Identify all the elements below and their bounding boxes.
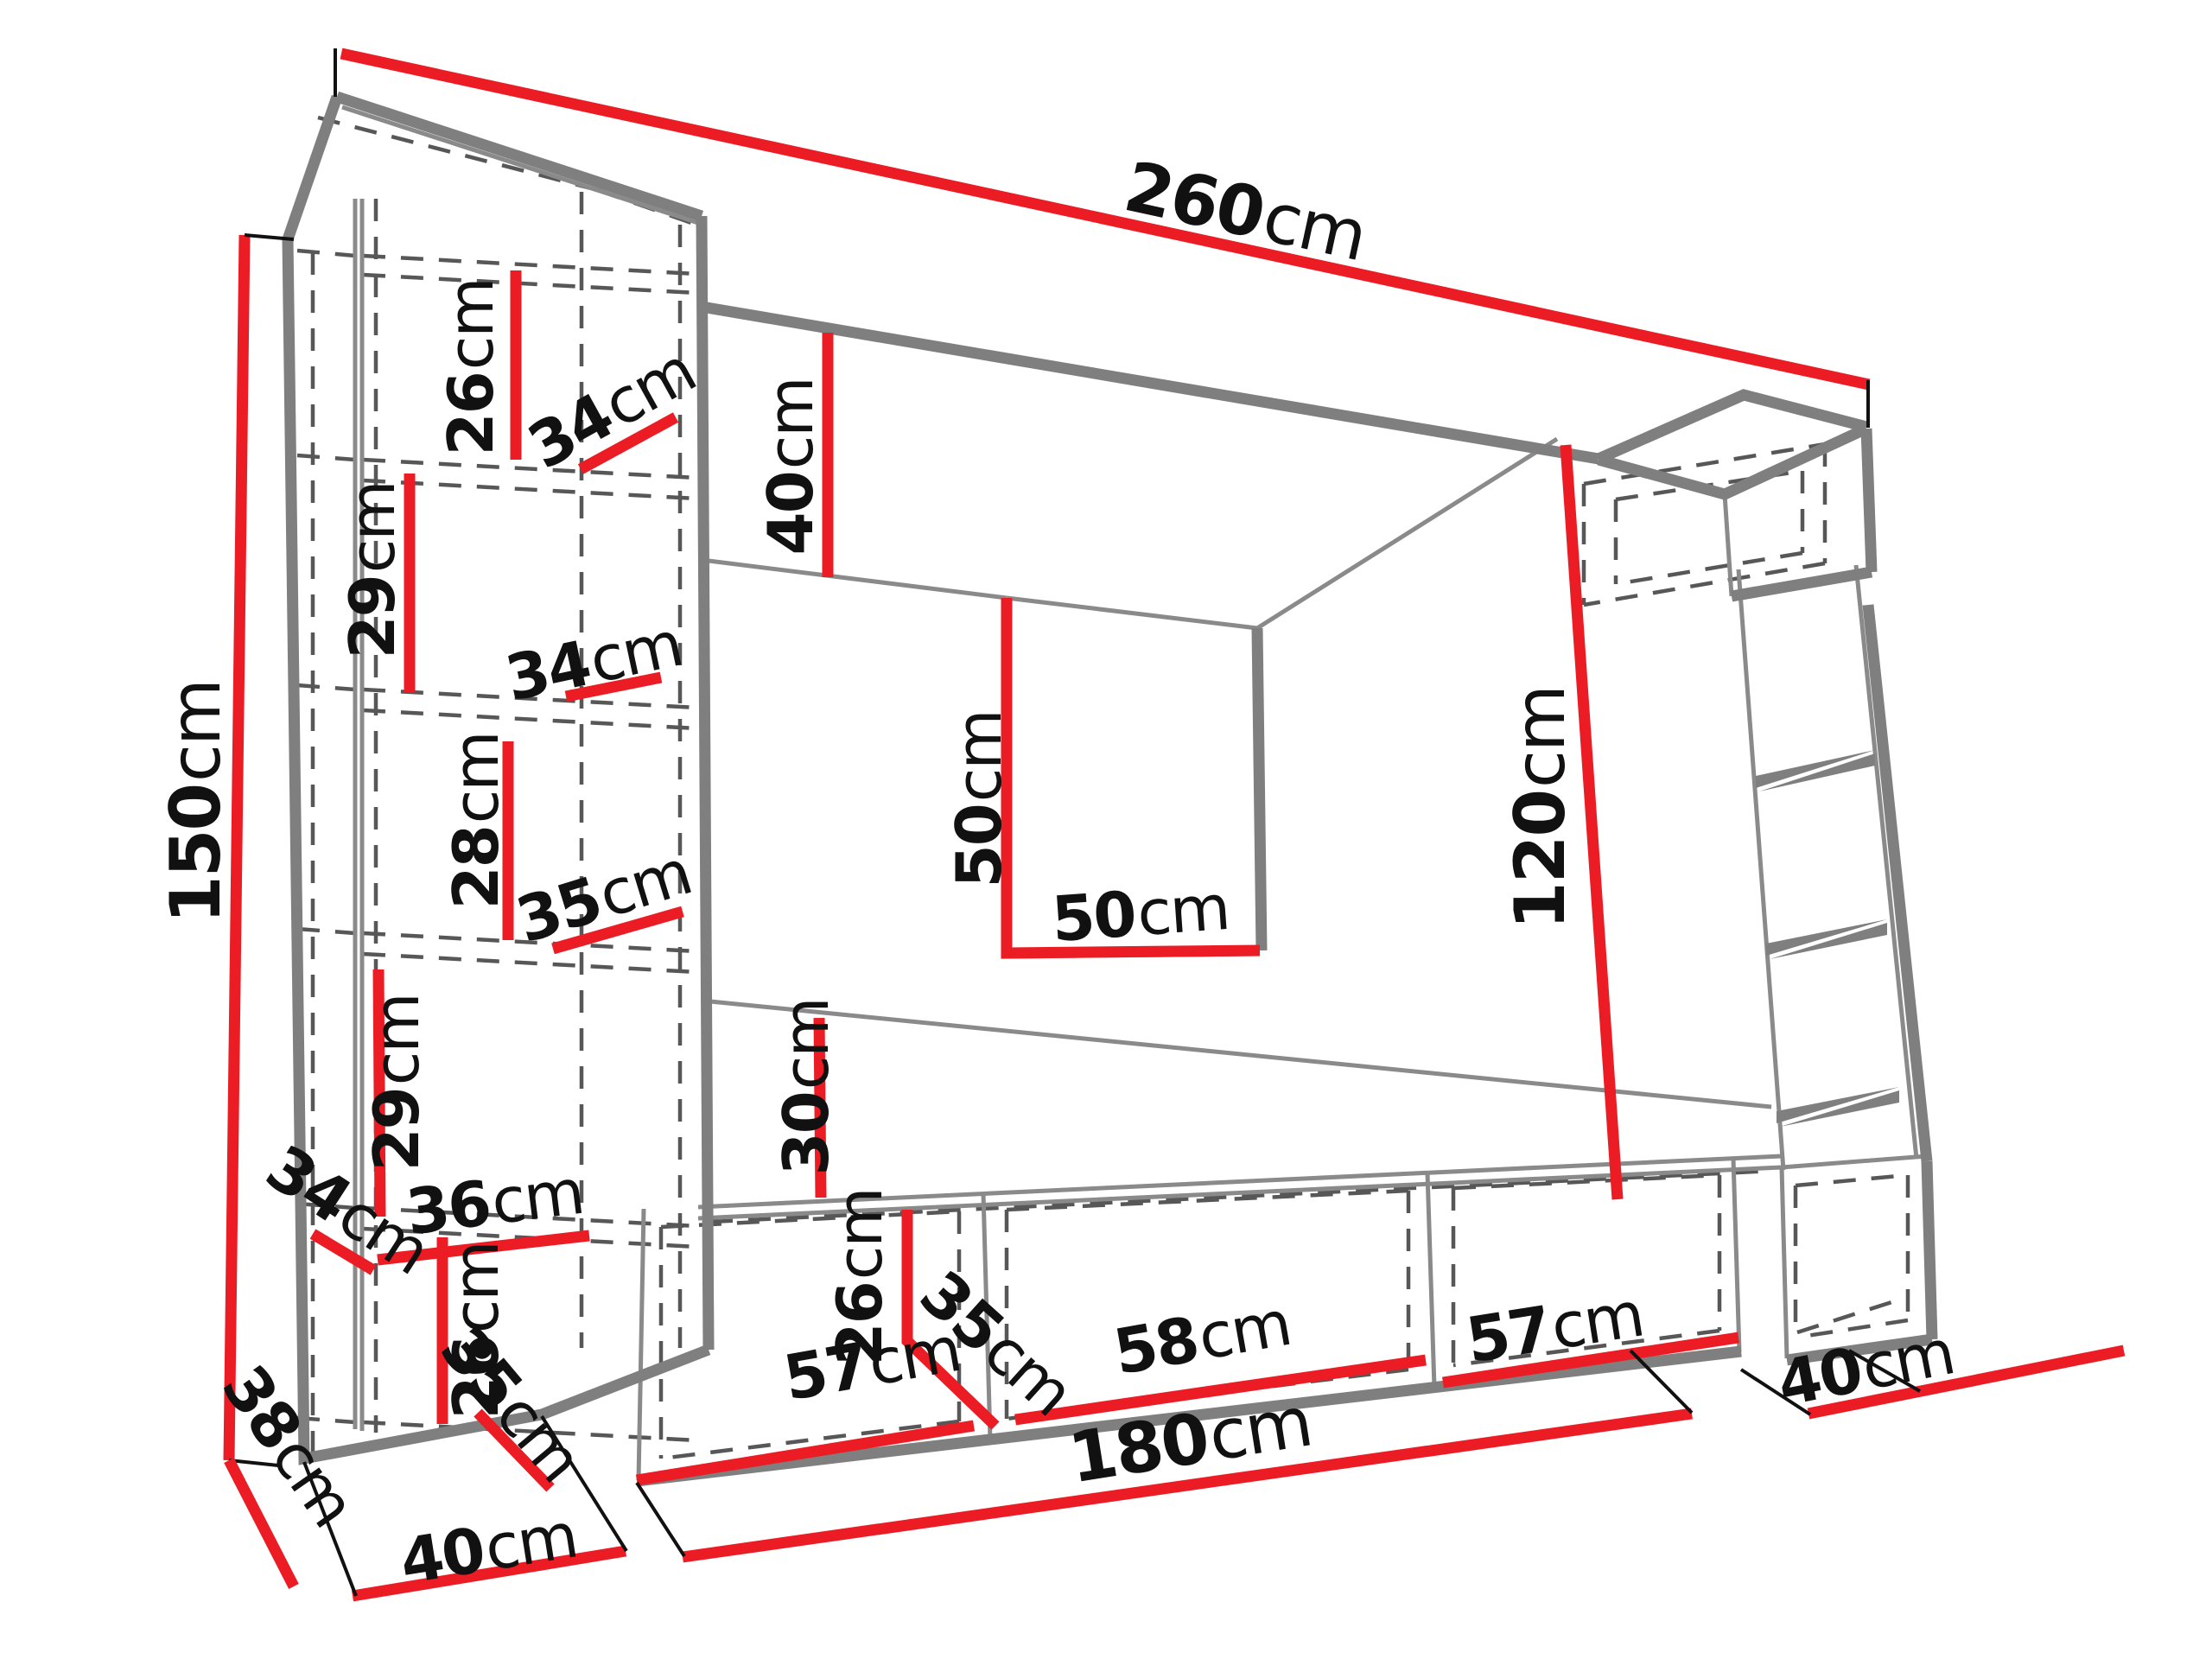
cabinet-edge <box>702 216 709 1350</box>
dim-label-col-width-40: 40cm <box>395 1498 582 1598</box>
panel-edge <box>1856 565 1916 1159</box>
hidden-edge <box>297 685 355 690</box>
dim-unit-right-height-120: cm <box>1500 686 1580 788</box>
cabinet-edge <box>1868 605 1927 1161</box>
panel-edge <box>1007 598 1257 628</box>
dim-value-gap-30: 30 <box>770 1092 842 1175</box>
hidden-edge <box>1796 1175 1908 1185</box>
dim-tick-base-180 <box>637 1483 684 1556</box>
dim-label-height-150: 150cm <box>156 680 236 924</box>
hidden-edge <box>318 118 598 190</box>
dim-unit-shelf-gap-28: cm <box>440 733 512 824</box>
dim-unit-shelf-gap-29b: cm <box>360 995 433 1086</box>
dim-label-shelf-gap-28: 28cm <box>440 733 512 910</box>
hidden-edge <box>363 275 696 293</box>
dim-value-right-height-120: 120 <box>1500 791 1580 930</box>
dim-unit-open-height-26: cm <box>823 1189 896 1281</box>
dim-label-panel-height-40: 40cm <box>754 378 827 556</box>
dim-label-cab-57a: 57cm <box>779 1312 965 1414</box>
dim-unit-cab-57b: cm <box>1546 1277 1648 1363</box>
cabinet-edge <box>702 307 1599 459</box>
hidden-edge <box>363 954 696 972</box>
panel-edge <box>1427 1173 1434 1388</box>
dim-value-cab-58: 58 <box>1109 1302 1203 1388</box>
panel-edge <box>1257 439 1557 628</box>
dim-label-shelf-depth-34b: 34cm <box>499 607 688 715</box>
dim-label-gap-30: 30cm <box>770 999 842 1176</box>
hidden-edge <box>363 710 696 728</box>
dim-value-niche-width-50: 50 <box>1049 877 1137 956</box>
dim-unit-cab-58: cm <box>1193 1286 1296 1373</box>
dim-value-niche-height-50: 50 <box>943 804 1015 887</box>
dim-label-niche-width-50: 50cm <box>1049 870 1230 955</box>
panel-edge <box>1782 1156 1927 1167</box>
dim-value-col-width-40: 40 <box>395 1513 488 1598</box>
dim-value-shelf-gap-26a: 26 <box>435 372 507 455</box>
dim-unit-gap-30: cm <box>770 999 842 1090</box>
dim-label-cab-58: 58cm <box>1109 1286 1295 1388</box>
dim-unit-base-180: cm <box>1204 1382 1317 1477</box>
dim-label-shelf-gap-26a: 26cm <box>435 279 507 456</box>
dim-unit-col-width-40: cm <box>480 1498 582 1585</box>
dim-value-shelf-gap-29b: 29 <box>360 1088 433 1171</box>
dim-unit-shelf-gap-29a: cm <box>336 482 409 574</box>
panel-edge <box>639 1209 644 1480</box>
cabinet-edge <box>1257 628 1262 950</box>
hidden-edge <box>297 929 355 933</box>
dim-unit-niche-height-50: cm <box>943 711 1015 803</box>
dim-label-shelf-gap-29b: 29cm <box>360 995 433 1172</box>
dim-value-shelf-gap-28: 28 <box>440 826 512 909</box>
panel-edge <box>1738 569 1783 1170</box>
cabinet-edge <box>1866 429 1872 572</box>
dim-value-shelf-gap-29a: 29 <box>336 575 409 658</box>
cabinet-edge <box>1927 1161 1932 1339</box>
hidden-edge <box>297 455 355 460</box>
dim-value-panel-height-40: 40 <box>754 472 827 555</box>
dim-unit-height-150: cm <box>156 680 236 782</box>
dim-label-shelf-gap-29a: 29cm <box>336 482 409 659</box>
panel-edge <box>702 560 1007 598</box>
furniture-dimension-drawing: 260cm150cm38cm40cm26cm34cm29cm34cm28cm35… <box>0 0 2212 1659</box>
dim-value-cab-57a: 57 <box>779 1328 873 1414</box>
dim-value-shelf-width-36: 36 <box>403 1166 494 1249</box>
dim-label-right-height-120: 120cm <box>1500 686 1580 930</box>
hidden-edge <box>363 256 696 274</box>
dim-value-width-260: 260 <box>1118 146 1271 254</box>
dim-unit-width-260: cm <box>1256 176 1373 276</box>
diagram-canvas: 260cm150cm38cm40cm26cm34cm29cm34cm28cm35… <box>0 0 2212 1659</box>
dim-label-niche-height-50: 50cm <box>943 711 1015 888</box>
dim-line-width-260 <box>341 54 1869 385</box>
dim-value-cab-57b: 57 <box>1461 1292 1554 1376</box>
dim-label-shelf-depth-34a: 34cm <box>516 334 706 483</box>
dim-unit-panel-height-40: cm <box>754 378 827 470</box>
panel-edge <box>1782 1167 1787 1358</box>
dim-label-width-260: 260cm <box>1118 146 1373 276</box>
dim-value-height-150: 150 <box>156 785 236 924</box>
dim-unit-shelf-width-36: cm <box>487 1154 587 1237</box>
dim-unit-shelf-depth-34b: cm <box>583 607 688 696</box>
panel-edge <box>1733 1159 1739 1352</box>
hidden-edge <box>1616 553 1802 584</box>
cabinet-edge <box>1732 572 1872 596</box>
hidden-edge <box>297 251 355 256</box>
dim-unit-niche-width-50: cm <box>1135 870 1230 949</box>
dim-unit-shelf-gap-26a: cm <box>435 279 507 371</box>
